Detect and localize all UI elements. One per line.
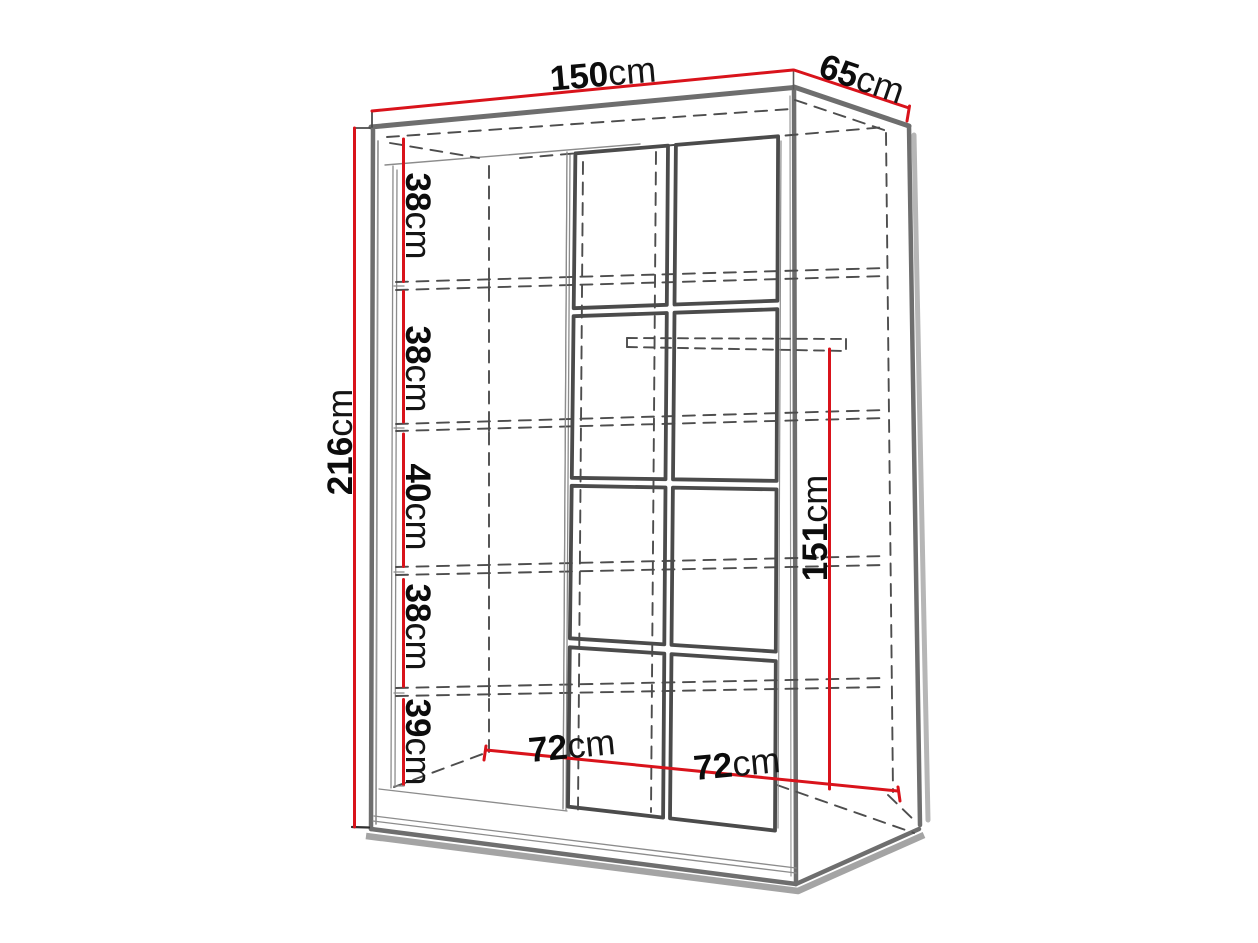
svg-text:150cm: 150cm [548,48,658,98]
svg-text:216cm: 216cm [319,389,360,495]
svg-text:38cm: 38cm [398,584,439,671]
svg-text:39cm: 39cm [398,699,439,786]
svg-text:38cm: 38cm [398,326,439,413]
svg-text:72cm: 72cm [692,739,782,788]
svg-text:151cm: 151cm [794,475,835,581]
svg-text:65cm: 65cm [814,45,910,112]
svg-text:40cm: 40cm [398,464,439,551]
svg-text:72cm: 72cm [527,721,617,770]
svg-text:38cm: 38cm [398,173,439,260]
